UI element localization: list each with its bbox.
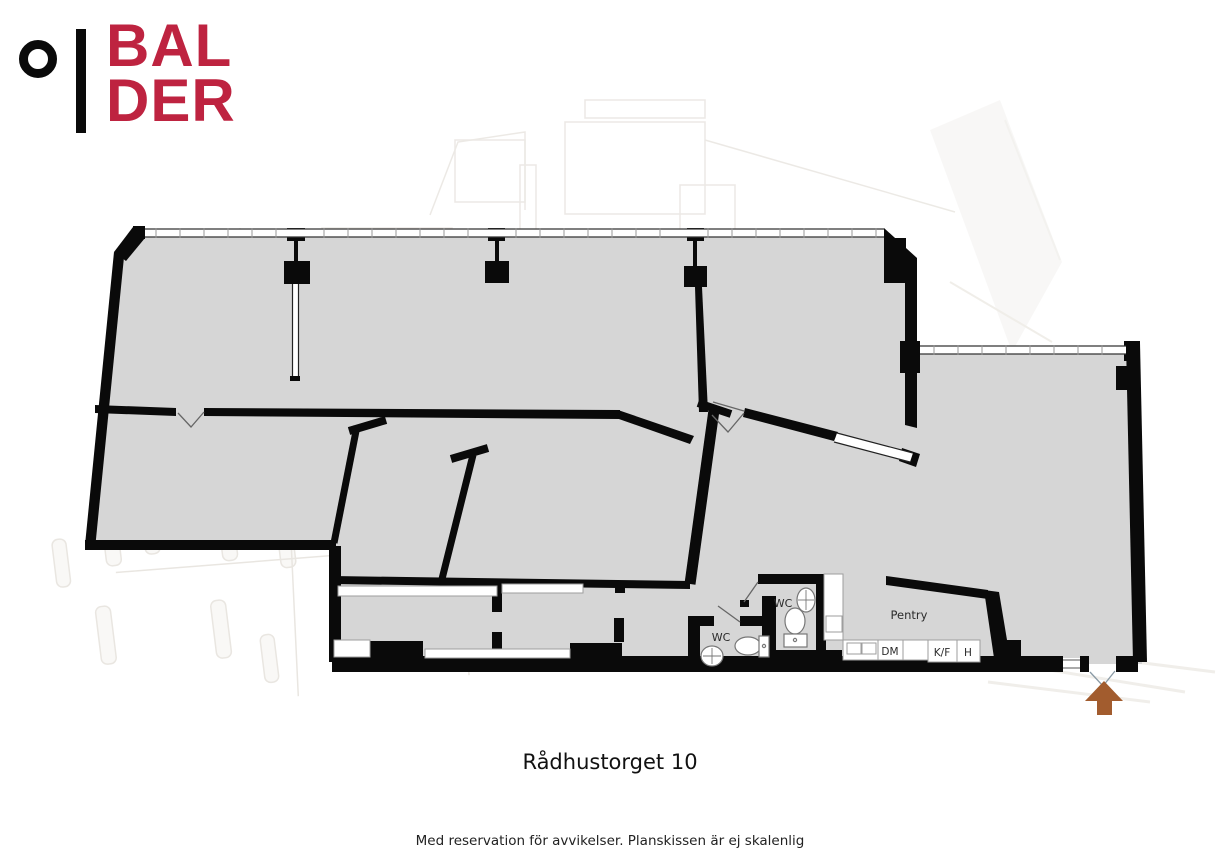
- sink-icon: [797, 588, 815, 612]
- background-sketch-right: [930, 100, 1062, 352]
- room-label-wc-lower: WC: [712, 631, 731, 644]
- floor-plan: WC WC Pentry DM K/F H: [0, 0, 1220, 862]
- entrance-sidelight: [1063, 658, 1080, 670]
- sink-icon: [701, 646, 723, 666]
- page-title: Rådhustorget 10: [0, 750, 1220, 774]
- room-label-wc-upper: WC: [774, 597, 793, 610]
- window-band-top: [145, 228, 884, 238]
- page: BAL DER: [0, 0, 1220, 862]
- disclaimer-text: Med reservation för avvikelser. Planskis…: [0, 833, 1220, 849]
- room-label-pentry: Pentry: [891, 608, 928, 622]
- toilet-icon: [784, 608, 807, 647]
- appliance-label-h: H: [964, 647, 972, 659]
- appliance-label-kf: K/F: [934, 647, 950, 659]
- entrance-arrow-icon: [1085, 681, 1123, 715]
- window-band-right: [920, 345, 1126, 355]
- appliance-label-dm: DM: [881, 646, 898, 658]
- floor-area: [88, 231, 1142, 664]
